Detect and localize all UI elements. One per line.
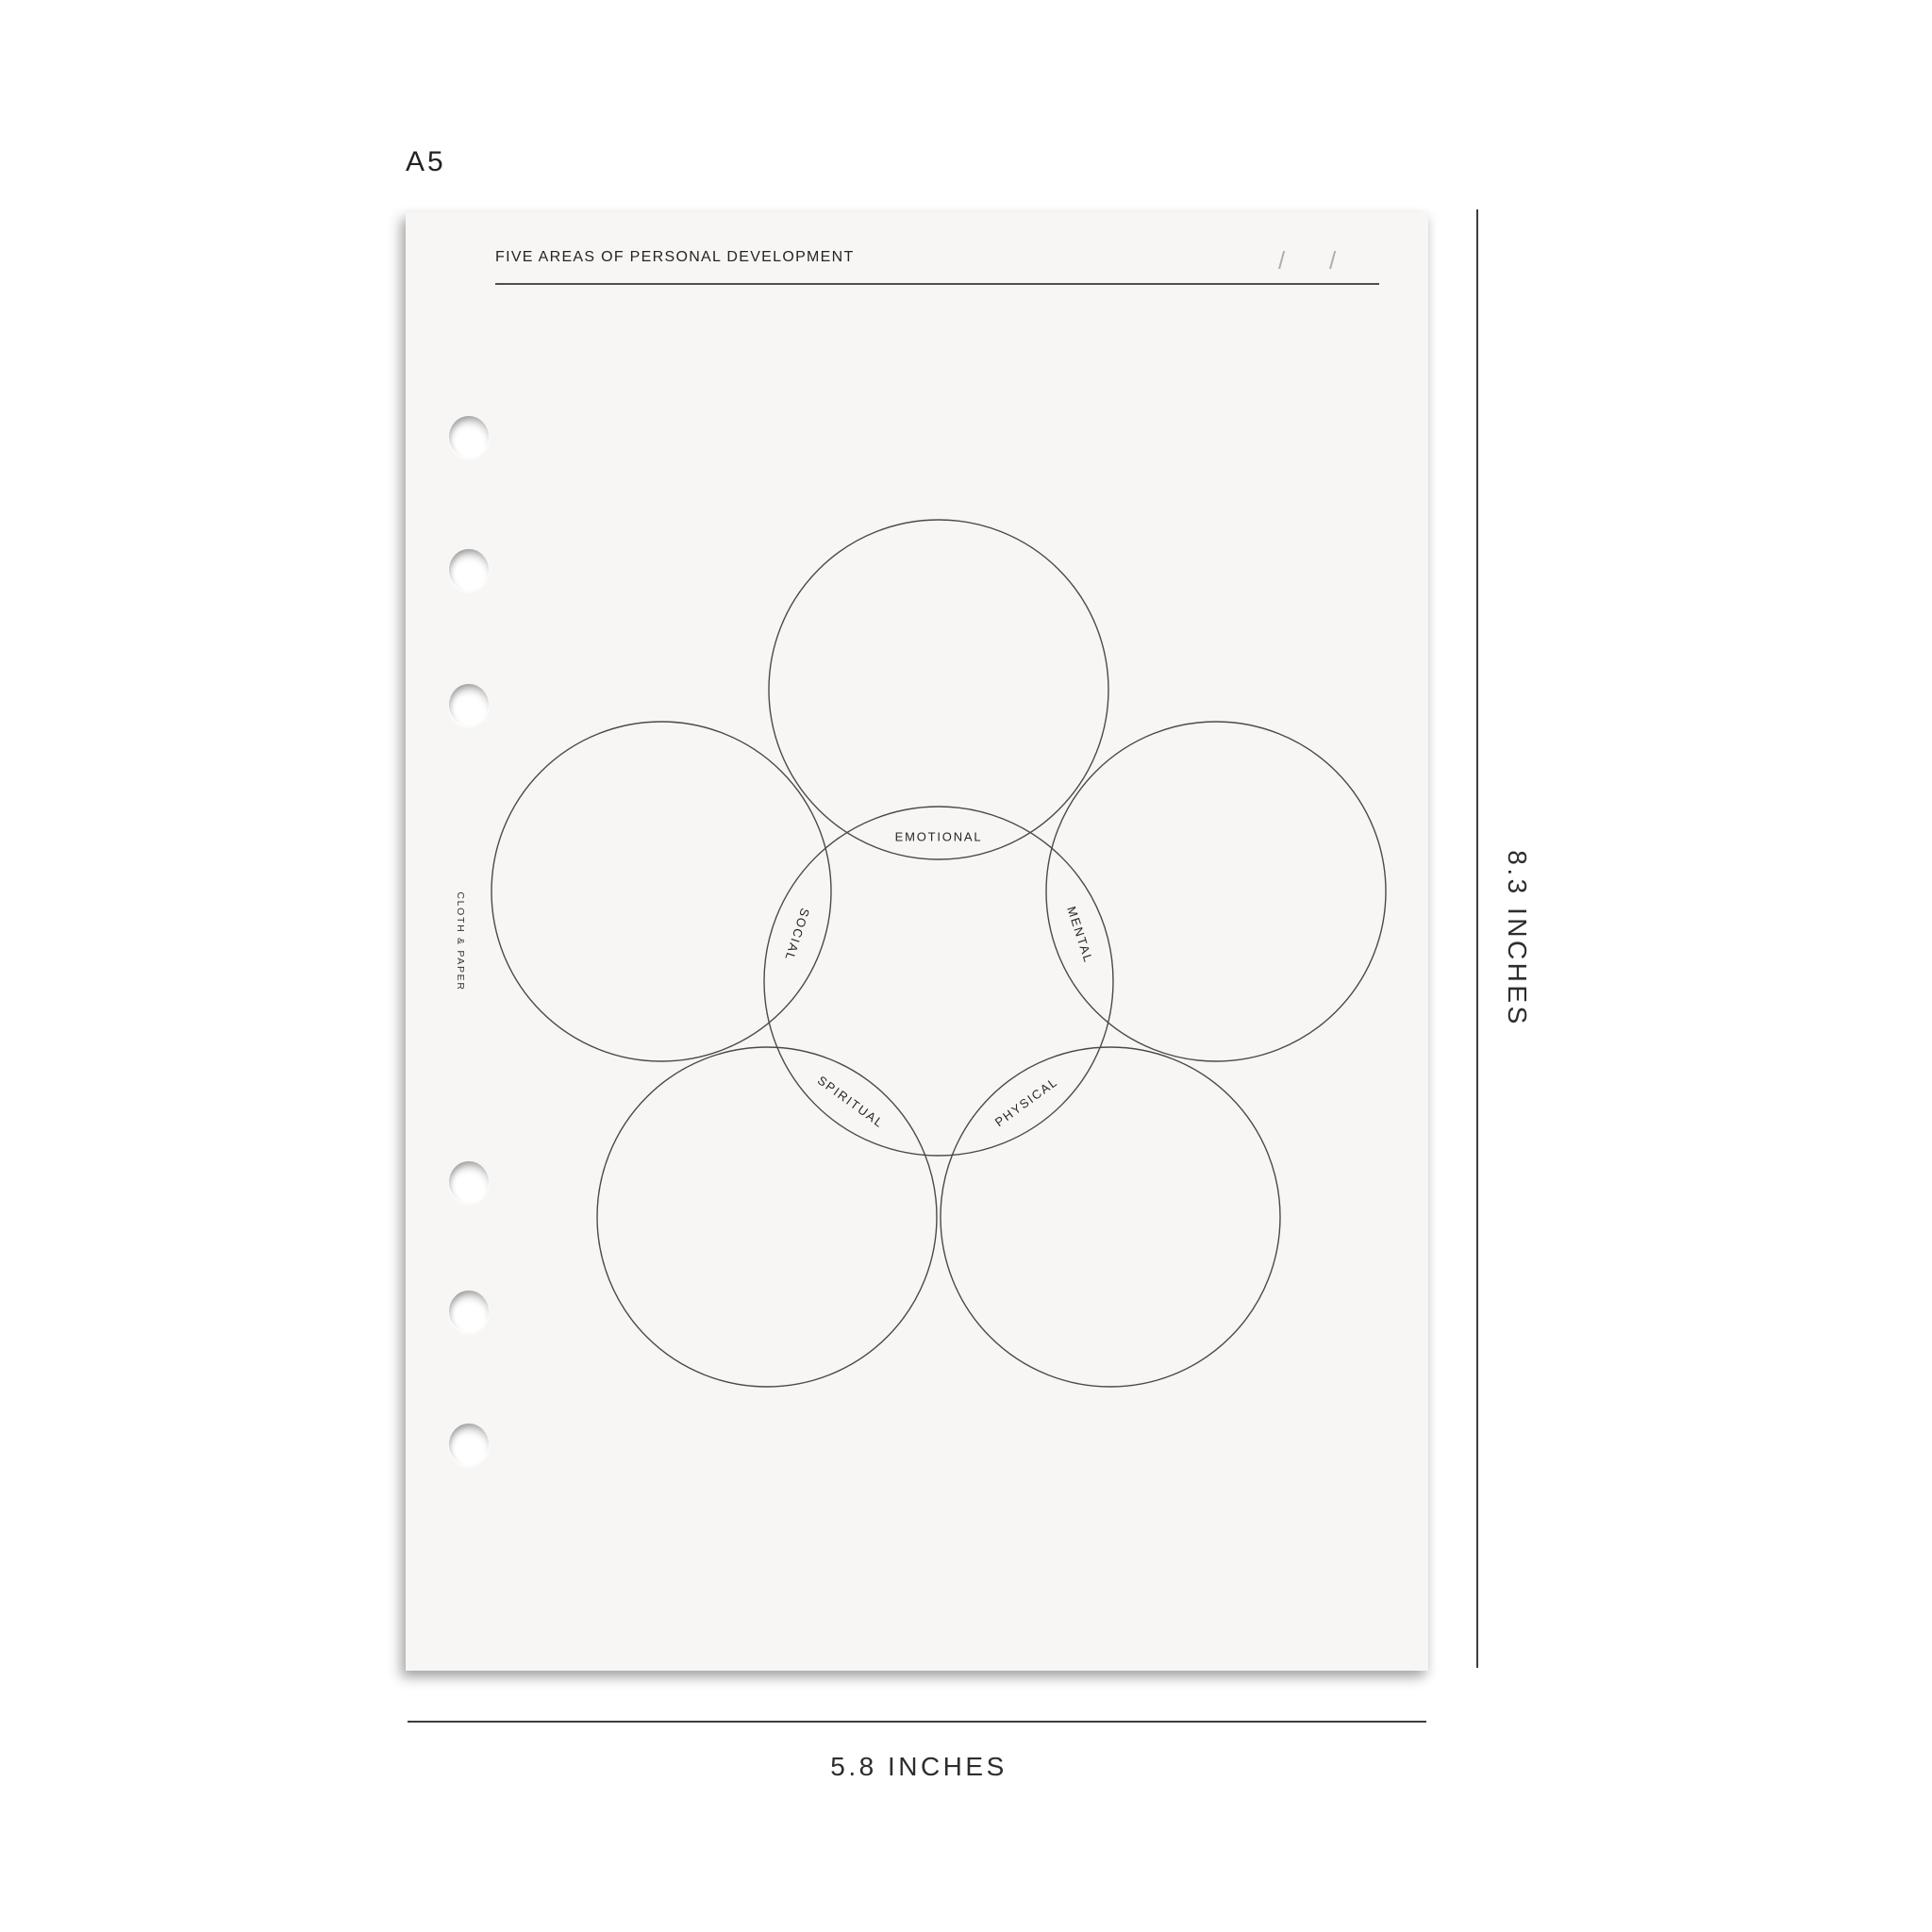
height-dimension-label: 8.3 INCHES — [1502, 850, 1532, 1027]
planner-page: FIVE AREAS OF PERSONAL DEVELOPMENT / / C… — [406, 212, 1428, 1671]
venn-label-physical: PHYSICAL — [992, 1074, 1060, 1129]
venn-circle-lower-right — [941, 1047, 1280, 1387]
width-dimension-label: 5.8 INCHES — [830, 1752, 1008, 1782]
venn-label-mental: MENTAL — [1064, 905, 1096, 965]
venn-label-social: SOCIAL — [782, 907, 812, 963]
venn-circle-top — [769, 520, 1108, 859]
height-ruler-line — [1476, 209, 1478, 1668]
size-label: A5 — [406, 146, 446, 178]
venn-circle-upper-left — [491, 722, 831, 1061]
venn-diagram: EMOTIONAL SOCIAL MENTAL SPIRITUAL PHYSIC… — [406, 212, 1428, 1671]
width-ruler-line — [408, 1721, 1426, 1723]
venn-label-spiritual: SPIRITUAL — [815, 1073, 887, 1130]
venn-circle-upper-right — [1046, 722, 1386, 1061]
venn-circle-lower-left — [597, 1047, 937, 1387]
product-image-canvas: A5 FIVE AREAS OF PERSONAL DEVELOPMENT / … — [0, 0, 1932, 1932]
venn-label-emotional: EMOTIONAL — [895, 830, 983, 844]
